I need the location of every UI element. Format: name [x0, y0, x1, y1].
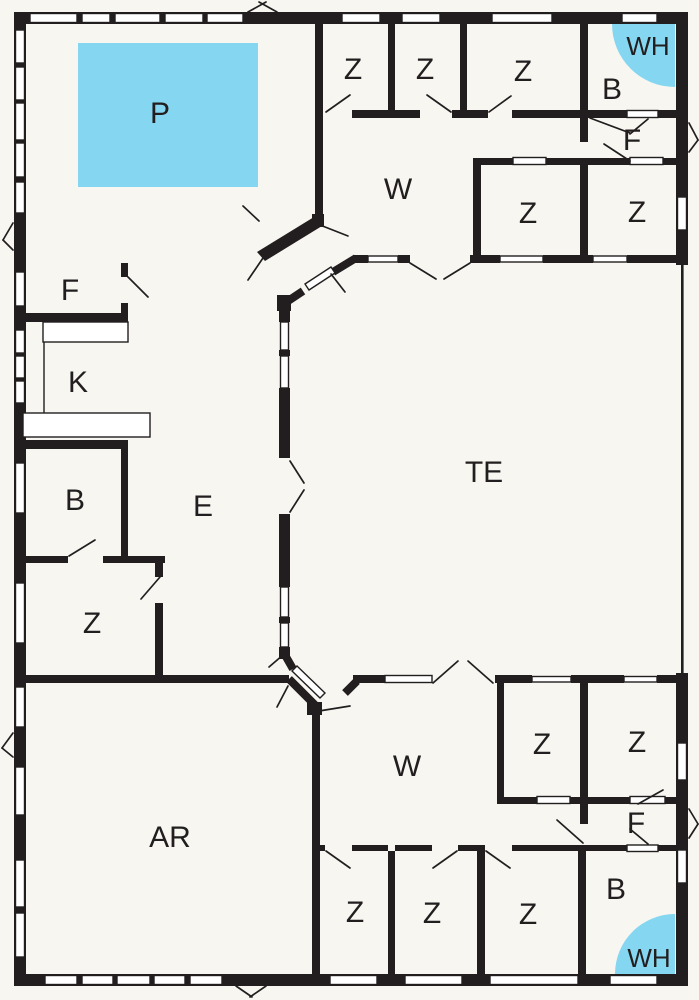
room-label-z-top-1: Z: [344, 53, 362, 86]
room-label-z-midbot-1: Z: [533, 728, 551, 761]
room-label-b-top: B: [602, 73, 622, 106]
room-label-terrace: TE: [465, 456, 503, 489]
room-label-wh-bottom: WH: [627, 943, 670, 973]
room-label-z-top-2: Z: [416, 53, 434, 86]
room-label-w-top: W: [384, 173, 413, 206]
room-label-f-top: F: [623, 124, 641, 157]
room-label-entry: E: [193, 490, 213, 523]
floor-plan: P Z Z Z WH B F W Z Z F K TE B E Z AR W Z…: [0, 0, 699, 1000]
room-label-w-bottom: W: [393, 750, 422, 783]
room-label-f-left: F: [61, 274, 79, 307]
room-label-z-bot-2: Z: [423, 897, 441, 930]
room-label-z-left: Z: [83, 607, 101, 640]
room-label-z-midbot-2: Z: [628, 726, 646, 759]
floor-plan-svg: P Z Z Z WH B F W Z Z F K TE B E Z AR W Z…: [0, 0, 699, 1000]
room-label-kitchen: K: [68, 366, 88, 399]
room-label-activity: AR: [149, 821, 191, 854]
room-label-pool: P: [150, 97, 170, 130]
room-label-z-top-3: Z: [514, 55, 532, 88]
room-label-wh-top: WH: [626, 31, 669, 61]
room-label-z-bot-1: Z: [346, 896, 364, 929]
room-label-z-midtop-2: Z: [628, 196, 646, 229]
room-label-z-midtop-1: Z: [519, 197, 537, 230]
room-label-z-bot-3: Z: [519, 898, 537, 931]
room-label-b-bottom: B: [606, 873, 626, 906]
room-label-b-left: B: [65, 484, 85, 517]
room-label-f-bottom: F: [627, 807, 645, 840]
